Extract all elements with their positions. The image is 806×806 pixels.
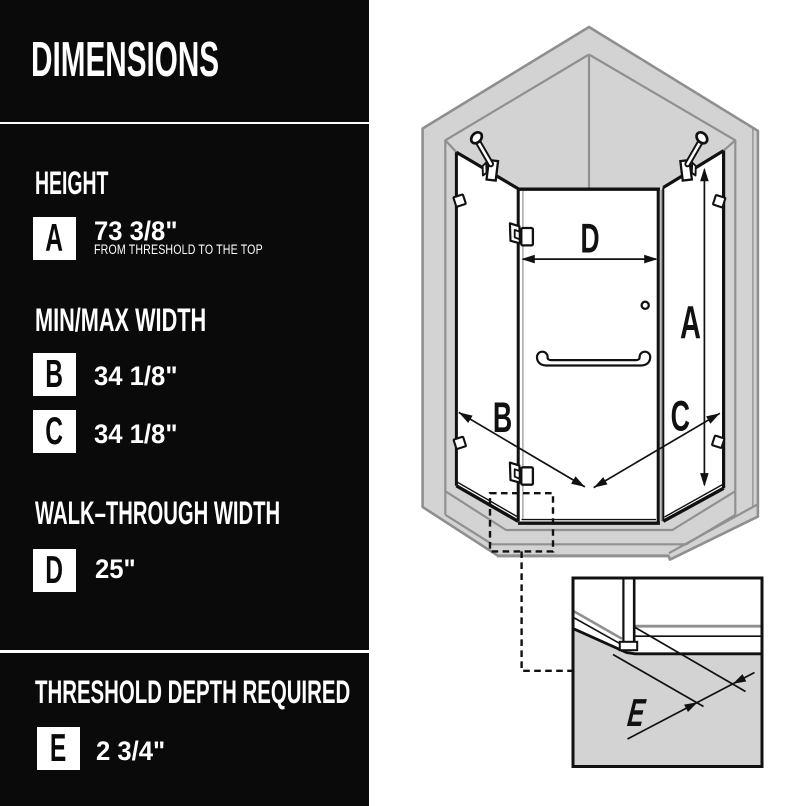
svg-text:C: C	[671, 392, 690, 440]
svg-text:A: A	[680, 297, 701, 348]
svg-text:B: B	[493, 394, 512, 442]
svg-text:D: D	[580, 215, 599, 262]
